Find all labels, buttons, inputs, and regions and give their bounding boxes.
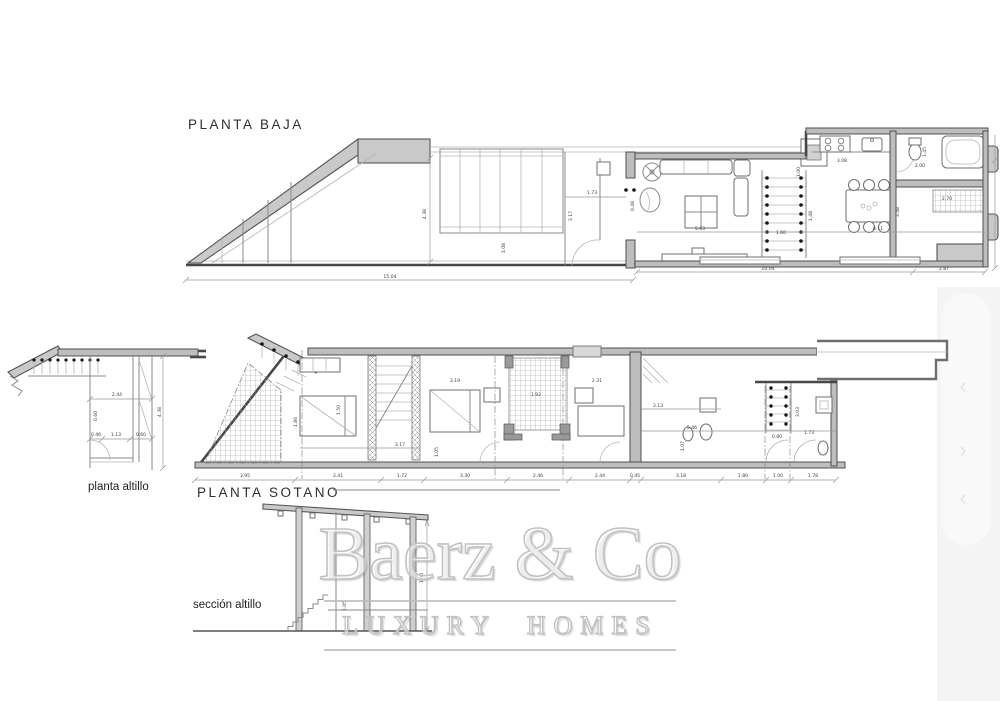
dim-label: 5.63	[695, 226, 705, 232]
dim-label: 15.04	[383, 274, 396, 280]
dim-label: 2.44	[595, 473, 605, 479]
dim-label: 0.45	[630, 473, 640, 479]
seccion-altillo-drawing: 1.90 1.05 sección altillo	[193, 504, 432, 632]
sotano-patio-hatch	[205, 363, 281, 463]
seccion-post	[410, 517, 416, 631]
planta-altillo-title: planta altillo	[88, 481, 149, 493]
dim-label: 3.48	[895, 207, 901, 217]
seccion-altillo-title: sección altillo	[193, 599, 261, 611]
dim-label: 1.05	[342, 601, 348, 611]
dim-label: 1.60	[776, 230, 786, 236]
door-arc	[90, 440, 110, 460]
dim-label: 1.45	[922, 147, 928, 157]
dim-label: 0.60	[136, 432, 146, 438]
sotano-bedroom1	[300, 358, 356, 436]
dim-label: 3.19	[450, 378, 460, 384]
planta-sotano-title: PLANTA SOTANO	[197, 485, 340, 500]
dim-label: 4.38	[157, 407, 163, 417]
dim-label: 1.73	[804, 430, 814, 436]
altillo-top-wall	[58, 349, 198, 356]
plan-planta-baja: PLANTA BAJA	[183, 117, 998, 283]
baja-living-room	[634, 131, 806, 267]
dim-label: 8.11	[873, 226, 883, 232]
sotano-altillo-outline	[817, 341, 947, 379]
baja-glazing	[440, 149, 563, 233]
dim-label: 0.46	[91, 432, 101, 438]
dim-label: 1.05	[434, 447, 440, 457]
dim-label: 3.17	[395, 442, 405, 448]
plan-planta-altillo: 2.44 0.46 1.13 0.60 0.60 4.38 planta alt…	[8, 346, 198, 493]
dim-label: 2.70	[942, 196, 952, 202]
seccion-stairs	[288, 595, 328, 631]
dim-label: 3.41	[333, 473, 343, 479]
dim-label: 1.00	[773, 473, 783, 479]
sotano-wc	[794, 397, 832, 462]
dim-label: 3.18	[676, 473, 686, 479]
dim-label: 3.03	[795, 407, 801, 417]
plant-icon	[640, 188, 660, 212]
dim-label: 1.90	[419, 573, 425, 583]
dim-label: 1.50	[336, 405, 342, 415]
dim-label: 1.73	[587, 190, 597, 196]
sink-icon	[700, 398, 716, 412]
baja-sloped-wall	[188, 139, 371, 263]
bathtub-icon	[942, 136, 984, 168]
dim-label: 0.80	[772, 434, 782, 440]
sotano-lightwell	[504, 356, 570, 440]
sotano-top-wall	[308, 348, 817, 355]
dim-label: 3.13	[653, 403, 663, 409]
sotano-stairs	[766, 383, 791, 462]
dim-label: 2.87	[939, 266, 949, 272]
baja-entry	[565, 152, 636, 268]
stove-icon	[820, 136, 850, 152]
toilet-icon	[818, 441, 828, 455]
plan-planta-sotano: PLANTA SOTANO	[190, 334, 947, 500]
dim-label: 3.08	[837, 158, 847, 164]
dim-label: 1.78	[808, 473, 818, 479]
baja-dining	[846, 180, 892, 233]
dim-label: 1.80	[738, 473, 748, 479]
dim-label: 1.86	[293, 417, 299, 427]
door-arc	[600, 442, 620, 462]
baja-landing-block	[358, 139, 430, 163]
door-arc	[766, 440, 788, 462]
door-arc	[480, 442, 500, 462]
dim-label: 4.38	[422, 209, 428, 219]
seccion-post	[364, 514, 370, 631]
dim-label: 3.17	[568, 211, 574, 221]
toilet-icon	[909, 144, 921, 160]
dim-label: 0.48	[630, 201, 636, 211]
coffee-table	[685, 196, 717, 228]
baja-bottom-wall	[635, 261, 988, 267]
altillo-dimensions: 2.44 0.46 1.13 0.60 0.60 4.38	[87, 353, 166, 471]
dim-label: 1.92	[531, 392, 541, 398]
dim-label: 1.48	[808, 211, 814, 221]
dim-label: 5.46	[687, 425, 697, 431]
dim-label: 1.72	[397, 473, 407, 479]
sotano-bottom-wall	[195, 462, 845, 468]
planta-baja-title: PLANTA BAJA	[188, 117, 304, 132]
dim-label: 10.04	[761, 266, 774, 272]
dim-label: 1.00	[796, 167, 802, 177]
wardrobe	[300, 358, 340, 372]
dim-label: 3.95	[240, 473, 250, 479]
sotano-mid-wall	[630, 352, 641, 462]
dim-label: 2.46	[533, 473, 543, 479]
door-arc	[794, 440, 816, 462]
baja-stairs	[762, 170, 806, 258]
altillo-sloped-rail	[8, 346, 62, 378]
dim-label: 1.13	[111, 432, 121, 438]
dim-label: 2.00	[915, 163, 925, 169]
sotano-bedroom2	[430, 388, 500, 462]
dim-label: 0.60	[93, 411, 99, 421]
baja-lower-stairs	[933, 190, 985, 212]
floorplan-sheet: ‹ › ‹ PLANTA BAJA	[0, 0, 1000, 701]
seccion-post	[296, 508, 302, 631]
sotano-bathroom	[643, 358, 716, 441]
plans-drawing: PLANTA BAJA	[0, 0, 1000, 701]
shower-icon	[643, 358, 668, 383]
sink-icon	[862, 138, 882, 151]
dim-label: 1.08	[501, 243, 507, 253]
dim-label: 2.44	[112, 392, 122, 398]
dim-label: 3.30	[460, 473, 470, 479]
dim-label: 2.31	[592, 378, 602, 384]
toilet-icon	[700, 424, 712, 440]
sotano-room3	[575, 388, 624, 462]
ceiling-fan-icon	[643, 163, 661, 181]
dim-label: 1.07	[680, 441, 686, 451]
